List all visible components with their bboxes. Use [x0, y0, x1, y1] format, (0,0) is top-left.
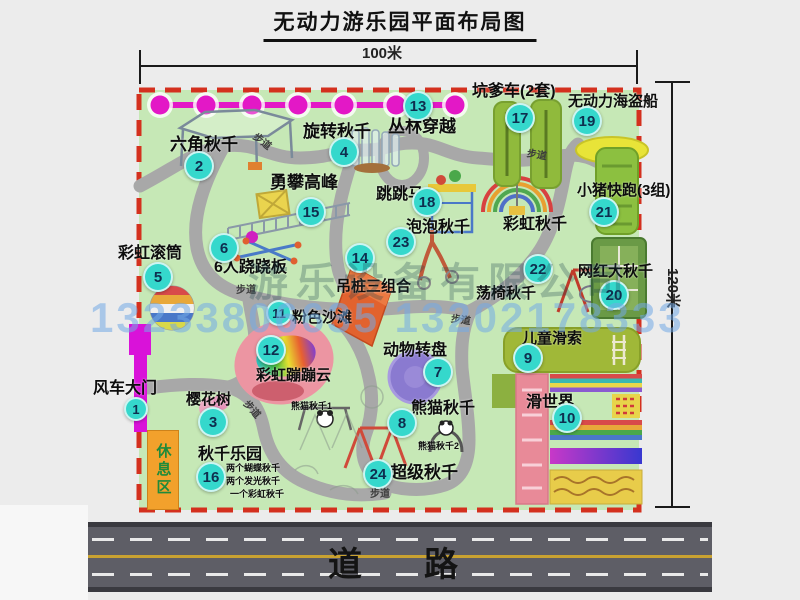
attraction-badge-4: 4: [329, 137, 359, 167]
road: 道 路: [88, 522, 712, 592]
attraction-label-17: 坑爹车(2套): [472, 83, 556, 101]
attraction-label-5: 彩虹滚筒: [118, 245, 182, 263]
extra-label-1: 熊猫秋千1: [291, 402, 332, 412]
attraction-label-21: 小猪快跑(3组): [577, 183, 670, 200]
attraction-badge-10: 10: [552, 403, 582, 433]
attraction-label-24: 超级秋千: [390, 464, 458, 483]
extra-label-2: 熊猫秋千2: [418, 442, 459, 452]
attraction-badge-9: 9: [513, 343, 543, 373]
attraction-badge-3: 3: [198, 407, 228, 437]
trail-label-1: 步道: [526, 144, 548, 162]
playground-layout-map: 无动力游乐园平面布局图 100米 120米 休息区 风车大门1六角秋千2樱花树3…: [0, 0, 800, 600]
attraction-badge-19: 19: [572, 106, 602, 136]
road-label: 道 路: [88, 537, 712, 586]
attraction-badge-15: 15: [296, 197, 326, 227]
attraction-badge-20: 20: [599, 280, 629, 310]
attraction-label-1: 风车大门: [93, 380, 157, 398]
attraction-badge-21: 21: [589, 197, 619, 227]
extra-label-0: 彩虹秋千: [503, 216, 567, 234]
trail-label-4: 步道: [241, 396, 266, 421]
attraction-badge-6: 6: [209, 233, 239, 263]
extra-label-3: 两个蝴蝶秋千: [226, 464, 280, 474]
attraction-label-8: 熊猫秋千: [411, 400, 475, 418]
attraction-markers: 风车大门1六角秋千2樱花树3旋转秋千4彩虹滚筒56人跷跷板6动物转盘7熊猫秋千8…: [0, 0, 800, 600]
attraction-label-12: 彩虹蹦蹦云: [256, 368, 331, 385]
attraction-label-11: 粉色沙滩: [292, 310, 352, 327]
attraction-badge-7: 7: [423, 357, 453, 387]
attraction-badge-1: 1: [124, 397, 148, 421]
attraction-badge-11: 11: [266, 300, 292, 326]
attraction-badge-22: 22: [523, 254, 553, 284]
trail-label-3: 步道: [450, 310, 472, 328]
trail-label-0: 步道: [251, 128, 276, 152]
extra-label-4: 两个发光秋千: [226, 477, 280, 487]
attraction-badge-17: 17: [505, 103, 535, 133]
trail-label-2: 步道: [236, 281, 256, 296]
attraction-label-20: 网红大秋千: [578, 264, 653, 281]
extra-label-5: 一个彩虹秋千: [230, 490, 284, 500]
attraction-label-3: 樱花树: [186, 392, 231, 409]
trail-label-5: 步道: [370, 485, 390, 500]
attraction-label-22: 荡椅秋千: [476, 286, 536, 303]
attraction-badge-5: 5: [143, 262, 173, 292]
attraction-label-14: 吊桩三组合: [336, 279, 411, 296]
attraction-badge-2: 2: [184, 151, 214, 181]
attraction-badge-16: 16: [196, 462, 226, 492]
attraction-badge-23: 23: [386, 227, 416, 257]
attraction-badge-12: 12: [256, 335, 286, 365]
attraction-badge-8: 8: [387, 408, 417, 438]
attraction-label-13: 丛林穿越: [388, 118, 456, 137]
attraction-badge-14: 14: [345, 243, 375, 273]
attraction-badge-13: 13: [403, 91, 433, 121]
attraction-label-16: 秋千乐园: [198, 446, 262, 464]
attraction-badge-18: 18: [412, 187, 442, 217]
attraction-label-23: 泡泡秋千: [406, 219, 470, 237]
road-left-gap: [0, 505, 88, 600]
attraction-label-15: 勇攀高峰: [270, 174, 338, 193]
